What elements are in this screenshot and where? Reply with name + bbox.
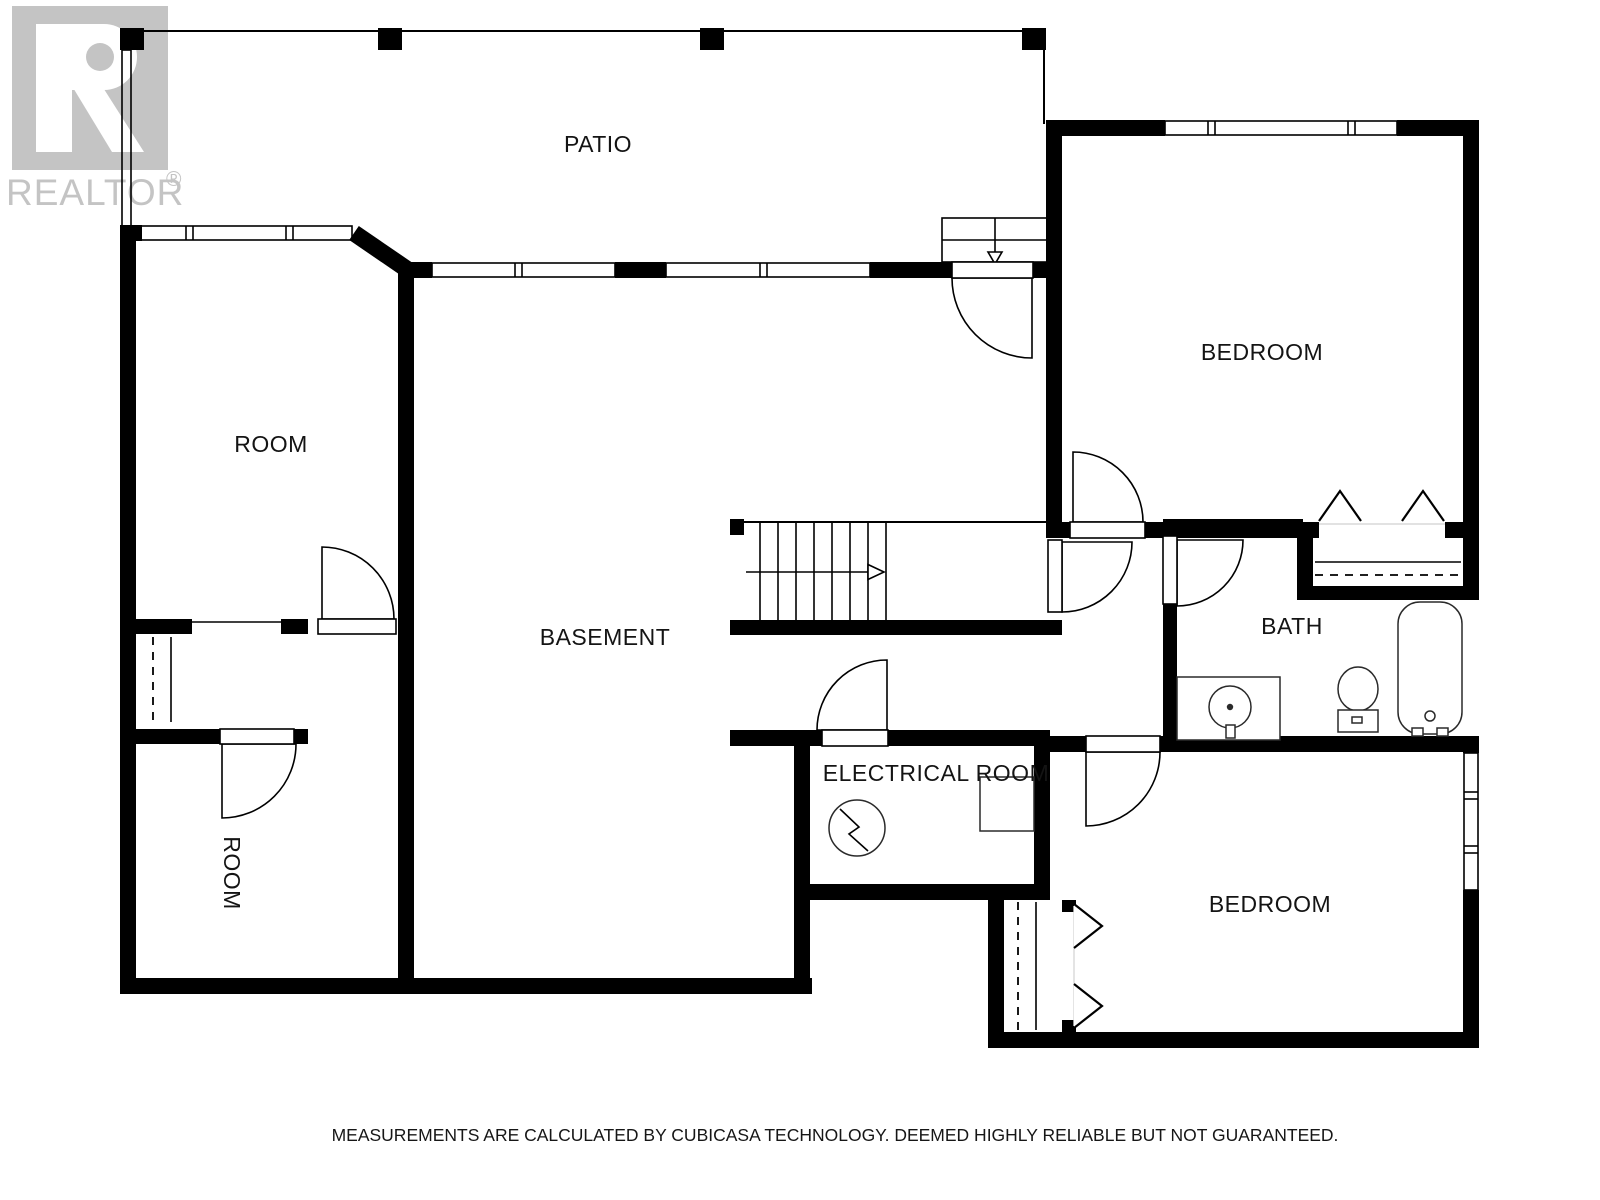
toilet-button [1352,717,1362,723]
logo-r-stem [36,24,72,152]
logo-brand-text: REALTOR [6,172,184,213]
wall-segment [120,978,812,994]
logo-r-counter [86,43,114,71]
wall-segment [1445,522,1479,538]
window-band [1464,753,1478,890]
patio-outline [120,28,1046,227]
wall-segment [294,729,308,744]
wall-segment [1046,736,1086,752]
wall-segment [1163,519,1303,533]
tub-handle [1412,728,1423,736]
floor-plan: REALTOR ® [0,0,1600,1200]
window-basement-1 [432,263,615,277]
door-leaf [220,729,294,744]
wall-segment [120,225,142,241]
wall-segment [120,619,192,634]
window-band [666,263,870,277]
door-leaf [1048,540,1062,612]
door-leaf [318,619,396,634]
room-label-bedroom-top: BEDROOM [1201,339,1323,365]
doors [192,262,1243,826]
wall-segment [1046,120,1165,136]
window-basement-2 [666,263,870,277]
window-band [1165,121,1397,135]
wall-segment [1297,586,1479,600]
toilet-icon [1338,667,1378,732]
bifold-door-icon [1074,984,1102,1028]
window-room-upper [140,226,352,240]
wall-segment [794,730,810,994]
wall-segment [730,519,744,535]
patio-post [1022,28,1046,50]
wall-segment [615,262,666,278]
window-band [432,263,615,277]
door-swing-arc [817,660,887,730]
door-leaf [952,262,1033,278]
wall-segment [120,729,220,744]
toilet-bowl [1338,667,1378,711]
room-label-room-upper: ROOM [234,431,308,457]
wall-segment [1463,736,1479,753]
wall-segment [1463,890,1479,1048]
wall-segment [730,620,1062,635]
electrical-symbols [829,777,1034,856]
disclaimer-text: MEASUREMENTS ARE CALCULATED BY CUBICASA … [332,1125,1339,1145]
wall-segment [1034,730,1050,900]
door-swing-arc [952,278,1032,358]
wall-segment [988,900,1004,1048]
tub-handle [1437,728,1448,736]
door-swing-arc [322,547,394,619]
room-label-basement: BASEMENT [540,624,671,650]
tub-faucet [1425,711,1435,721]
wall-segment [870,262,953,278]
wall-segment [1163,519,1177,538]
door-swing-arc [1062,542,1132,612]
stairs [742,522,1046,620]
bifold-door-icon [1319,491,1361,521]
door-leaf [1086,736,1160,752]
window-bedroom-bottom [1464,753,1478,890]
door-swing-arc [222,744,296,818]
door-swing-arc [1177,540,1243,606]
wall-segment [405,262,432,278]
exterior-steps [942,218,1048,264]
wall-segment [120,225,136,994]
window-band [140,226,352,240]
wall-segment [888,730,1050,746]
wall-segment [1163,604,1177,752]
bifold-door-icon [1074,904,1102,948]
stairs-direction-arrow-icon [868,565,884,580]
sink-tap [1226,725,1235,738]
door-leaf [822,730,888,746]
wall-segment [398,262,414,994]
wall-segment [1046,120,1062,538]
logo-registered-mark: ® [166,168,182,191]
door-swing-arc [1086,752,1160,826]
room-label-patio: PATIO [564,131,632,157]
door-leaf [1070,522,1145,538]
patio-post [120,28,144,50]
wall-segment [281,619,308,634]
wall-segment [1046,522,1072,538]
patio-post [378,28,402,50]
window-bedroom-top [1165,121,1397,135]
door-leaf [1163,536,1177,604]
wall-segment [794,884,1050,900]
room-label-bedroom-bottom: BEDROOM [1209,891,1331,917]
door-swing-arc [1073,452,1143,522]
patio-post [700,28,724,50]
bifold-door-icon [1402,491,1444,521]
sink-drain-dot [1227,704,1233,710]
room-label-room-lower: ROOM [219,836,245,910]
room-label-electrical: ELECTRICAL ROOM [823,760,1049,786]
bathtub-icon [1398,602,1462,736]
floor-plan-page: REALTOR ® [0,0,1600,1200]
wall-segment [988,1032,1479,1048]
realtor-logo: REALTOR ® [6,6,184,213]
room-label-bath: BATH [1261,613,1323,639]
